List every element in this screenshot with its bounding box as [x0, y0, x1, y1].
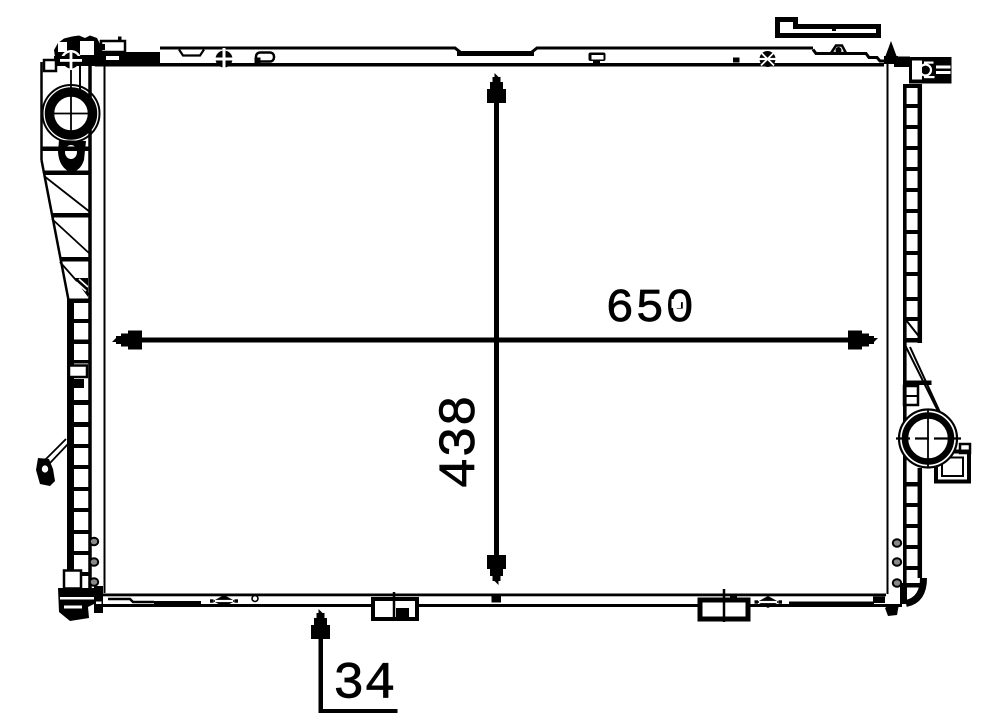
svg-text:650: 650 [606, 282, 696, 336]
svg-text:438: 438 [431, 395, 490, 489]
svg-text:34: 34 [333, 655, 395, 713]
